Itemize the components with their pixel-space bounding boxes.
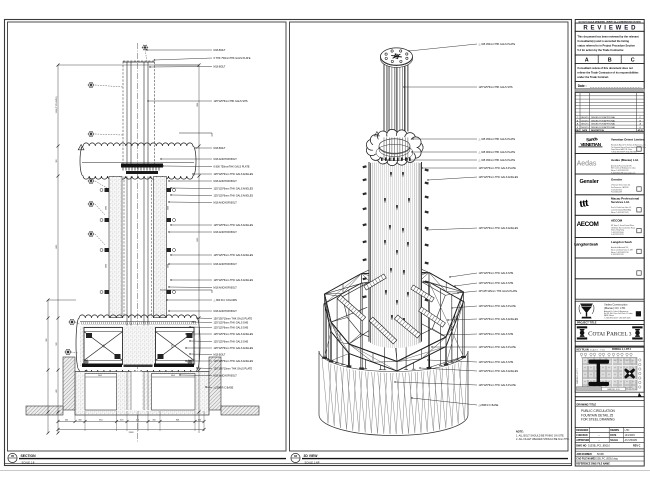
svg-text:△ 345 450mmTHK GALS PLATE: △ 345 450mmTHK GALS PLATE [479, 43, 516, 46]
svg-text:5153B_PC_85010.dwg: 5153B_PC_85010.dwg [594, 459, 618, 461]
svg-text:This document has been rev: This document has been reviewed by the r… [577, 34, 638, 38]
svg-text:M16 BOLT: M16 BOLT [214, 66, 226, 69]
svg-text:Aedas: Aedas [577, 160, 597, 167]
svg-text:△ 800 R.C COLUMN: △ 800 R.C COLUMN [214, 299, 238, 302]
svg-text:KEY PLAN: KEY PLAN [577, 348, 589, 351]
svg-text:125*125*6mm THK GALS SHS: 125*125*6mm THK GALS SHS [479, 361, 514, 364]
svg-text:125*125*6mm THK GALS ANGLES: 125*125*6mm THK GALS ANGLES [214, 224, 254, 227]
svg-text:△ 345 900mmTHK GALS PLATE: △ 345 900mmTHK GALS PLATE [479, 151, 516, 154]
svg-text:F 415.836.4599: F 415.836.4599 [611, 192, 622, 194]
svg-text:under the Trade Contract.: under the Trade Contract. [577, 75, 609, 79]
svg-text:ISSUED FOR APPROVAL: ISSUED FOR APPROVAL [591, 116, 616, 119]
svg-text:5153B_PCI_85010: 5153B_PCI_85010 [588, 444, 610, 448]
svg-text:APVD: APVD [638, 129, 644, 132]
svg-text:FOR STEEL DRAWING: FOR STEEL DRAWING [581, 418, 615, 422]
svg-text:125*125*6mm THK GALS SHS: 125*125*6mm THK GALS SHS [214, 327, 249, 330]
svg-text:△ 345 450mmTHK GALS PLATE: △ 345 450mmTHK GALS PLATE [479, 159, 516, 162]
svg-text:05: 05 [11, 454, 15, 458]
svg-text:A: A [585, 58, 589, 64]
svg-text:M16 BOLT: M16 BOLT [214, 354, 226, 357]
svg-text:F +852 3922 9797: F +852 3922 9797 [611, 234, 624, 236]
svg-text:150*150*10mm THK GALS PLATE: 150*150*10mm THK GALS PLATE [214, 368, 253, 371]
svg-text:REFERENCE DWG FILE NAME: REFERENCE DWG FILE NAME [576, 463, 610, 466]
svg-text:M16 BOLT: M16 BOLT [214, 49, 226, 52]
svg-text:PARCEL 1, LOT 2: PARCEL 1, LOT 2 [612, 348, 632, 351]
svg-text:125*125*6mm THK GALS ANGLES: 125*125*6mm THK GALS ANGLES [214, 360, 254, 363]
svg-text:28/05/15: 28/05/15 [581, 124, 590, 126]
svg-text:COTAI PARCEL 3: COTAI PARCEL 3 [588, 331, 632, 338]
svg-text:DESCRIPTION: DESCRIPTION [591, 130, 605, 132]
svg-text:1294 (TYP LEVEL): 1294 (TYP LEVEL) [56, 96, 58, 113]
svg-text:DESIGNED: DESIGNED [576, 430, 588, 432]
svg-text:status referred to in Pro: status referred to in Project Procedure … [577, 43, 635, 47]
svg-text:5.4 for action by the Tra: 5.4 for action by the Trade Contractor. [577, 48, 624, 52]
svg-text:125*125*6mm THK GALS ANGLES: 125*125*6mm THK GALS ANGLES [214, 347, 254, 350]
svg-text:M16 ANCHOR BOLT: M16 ANCHOR BOLT [214, 158, 238, 161]
svg-text:△2388 R.C BASE: △2388 R.C BASE [479, 404, 499, 407]
svg-text:Macau T +853 2837 5621: Macau T +853 2837 5621 [611, 212, 629, 214]
svg-text:△2388 R.C BASE: △2388 R.C BASE [214, 387, 234, 390]
svg-text:125*125*6mm THK GALS SHS: 125*125*6mm THK GALS SHS [479, 272, 514, 275]
svg-text:M16 ANCHOR BOLT: M16 ANCHOR BOLT [214, 202, 238, 205]
svg-text:(Macau) CO. LTD.: (Macau) CO. LTD. [604, 306, 626, 310]
svg-text:CAD FILE NAME: CAD FILE NAME [576, 458, 594, 461]
svg-text:T +853 2875 3225 F +853 2875: T +853 2875 3225 F +853 2875 3226 [604, 317, 630, 319]
svg-text:T 415.433.3700: T 415.433.3700 [611, 189, 622, 191]
svg-text:C: C [631, 58, 635, 64]
svg-text:1. ALL BOLT SHOULD BE FIXING: 1. ALL BOLT SHOULD BE FIXING ON SITE. [516, 434, 565, 437]
svg-text:APPROVED: APPROVED [576, 439, 589, 442]
svg-text:AECOM: AECOM [577, 221, 599, 228]
svg-text:No.263, Edf. China Civil Plaza: No.263, Edf. China Civil Plaza, 12 andar [604, 313, 633, 315]
svg-text:3600: 3600 [168, 206, 170, 210]
svg-text:T +852 3922 9000: T +852 3922 9000 [611, 232, 624, 234]
svg-text:DWG NO: DWG NO [576, 445, 586, 448]
svg-text:M16 ANCHOR BOLT: M16 ANCHOR BOLT [214, 287, 238, 290]
svg-text:125*125*6mm THK GALS SHS: 125*125*6mm THK GALS SHS [214, 322, 249, 325]
svg-text:M16 BOLT: M16 BOLT [214, 147, 226, 150]
svg-text:AECOM: AECOM [611, 219, 623, 223]
svg-text:JOB NUMBER: JOB NUMBER [576, 454, 592, 456]
svg-text:125*125*6mm THK GALS ANGLES: 125*125*6mm THK GALS ANGLES [479, 318, 519, 321]
svg-text:125*125*6mm THK GALS ANGLES: 125*125*6mm THK GALS ANGLES [214, 188, 254, 191]
svg-text:F +853 2833 1532: F +853 2833 1532 [611, 254, 624, 256]
svg-text:125*125*6mmTHK GALS SHS: 125*125*6mmTHK GALS SHS [479, 86, 513, 89]
svg-text:M16 ANCHOR BOLT: M16 ANCHOR BOLT [214, 310, 238, 313]
svg-text:Aedas (Macau) Ltd.: Aedas (Macau) Ltd. [611, 158, 639, 162]
svg-text:3600: 3600 [106, 206, 108, 210]
svg-text:ISSUED FOR APPROVAL: ISSUED FOR APPROVAL [591, 126, 616, 129]
svg-text:02: 02 [294, 454, 298, 458]
svg-text:DATE: DATE [610, 434, 617, 437]
svg-text:125*125*6mm THK GALS SHS: 125*125*6mm THK GALS SHS [479, 282, 514, 285]
svg-text:2958: 2958 [129, 432, 135, 434]
svg-text:M16 ANCHOR BOLT: M16 ANCHOR BOLT [214, 231, 238, 234]
svg-text:PARCEL 3 05: PARCEL 3 05 [607, 388, 620, 391]
svg-text:Langdon Seah: Langdon Seah [574, 241, 599, 246]
svg-text:125*125*6mm THK GALS SHS: 125*125*6mm THK GALS SHS [479, 333, 514, 336]
svg-text:DRAWING TITLE: DRAWING TITLE [577, 403, 597, 406]
svg-text:125*125*6mm THK GALS ANGLES: 125*125*6mm THK GALS ANGLES [214, 279, 254, 282]
svg-text:SCALE 1:NP: SCALE 1:NP [305, 460, 320, 464]
svg-text:Macau T +853 2833 1710: Macau T +853 2833 1710 [611, 252, 629, 254]
svg-text:relieve the Trade Contracto: relieve the Trade Contractor of its resp… [577, 71, 639, 75]
svg-text:Date :: Date : [578, 84, 587, 88]
svg-text:M16 ANCHOR BOLT: M16 ANCHOR BOLT [214, 263, 238, 266]
svg-text:AS SHOWN: AS SHOWN [625, 439, 638, 442]
svg-text:CHECKED: CHECKED [576, 435, 588, 437]
svg-text:ISSUED FOR APPROVAL: ISSUED FOR APPROVAL [591, 119, 616, 122]
svg-text:ISSUED FOR APPROVAL: ISSUED FOR APPROVAL [591, 123, 616, 126]
svg-text:SCALE 1 : 7 500: SCALE 1 : 7 500 [590, 348, 606, 351]
svg-text:Consultant review of this: Consultant review of this document does … [577, 66, 633, 70]
svg-text:125*125*6mm THK GALS ANGLES: 125*125*6mm THK GALS ANGLES [214, 333, 254, 336]
svg-text:125*125*6mm THK GALS SHS: 125*125*6mm THK GALS SHS [214, 341, 249, 344]
svg-text:SECTION: SECTION [21, 454, 37, 458]
svg-text:02/06/15: 02/06/15 [581, 120, 590, 122]
svg-text:6 800 750mmTHK GALS PLATE: 6 800 750mmTHK GALS PLATE [214, 166, 250, 169]
svg-text:5153B: 5153B [597, 454, 604, 456]
svg-text:Langdon Seah: Langdon Seah [611, 240, 632, 244]
svg-text:3600: 3600 [106, 264, 108, 268]
svg-text:M16 ANCHOR BOLT: M16 ANCHOR BOLT [214, 375, 238, 378]
svg-text:--: -- [598, 435, 600, 437]
svg-text:125*125*6mmTHK GALS SHS: 125*125*6mmTHK GALS SHS [214, 100, 248, 103]
svg-text:REV C: REV C [633, 445, 641, 448]
svg-text:--: -- [598, 440, 600, 442]
svg-text:500: 500 [172, 344, 174, 347]
svg-text:△ 345 450mmTHK GALS PLATE: △ 345 450mmTHK GALS PLATE [479, 138, 516, 141]
svg-text:Services Ltd.: Services Ltd. [611, 200, 630, 204]
svg-text:PARCEL 1, LOT 1: PARCEL 1, LOT 1 [576, 368, 579, 383]
svg-text:125*125*6mm THK GALS ANGLES: 125*125*6mm THK GALS ANGLES [214, 173, 254, 176]
svg-text:B: B [608, 58, 612, 64]
svg-text:125*125*6mm THK GALS PLATE: 125*125*6mm THK GALS PLATE [479, 167, 517, 170]
svg-text:125*125*6mm THK GALS ANGLES: 125*125*6mm THK GALS ANGLES [479, 370, 519, 373]
svg-text:125*125*6mm THK GALS ANGLES: 125*125*6mm THK GALS ANGLES [479, 176, 519, 179]
svg-text:125*125*6mm THK GALS ANGLES: 125*125*6mm THK GALS ANGLES [214, 195, 254, 198]
svg-text:125*125*6mm THK GALS PLATE: 125*125*6mm THK GALS PLATE [479, 384, 517, 387]
svg-text:125*125*6mm THK GALS ANGLES: 125*125*6mm THK GALS ANGLES [214, 254, 254, 257]
svg-text:NOTE:: NOTE: [516, 431, 524, 434]
svg-text:DRAWN: DRAWN [610, 429, 619, 432]
svg-text:6 THK 750mmTHK GALS PLATE: 6 THK 750mmTHK GALS PLATE [214, 57, 251, 60]
svg-text:R E V I E W E D: R E V I E W E D [583, 26, 636, 32]
svg-text:Venetian Orient Limited: Venetian Orient Limited [611, 137, 645, 141]
svg-text:Macau T +853 2833 1113: Macau T +853 2833 1113 [611, 170, 629, 172]
svg-text:125*125*6mm THK GALS PLATE: 125*125*6mm THK GALS PLATE [479, 305, 517, 308]
svg-text:125*125*6mm THK GALS ANGLES: 125*125*6mm THK GALS ANGLES [479, 227, 519, 230]
svg-text:DATE: DATE [582, 129, 588, 132]
svg-text:SCALE 1:8: SCALE 1:8 [22, 460, 35, 464]
svg-text:20/05/15: 20/05/15 [581, 127, 590, 129]
svg-text:150*150*10mm THK GALS PLATE: 150*150*10mm THK GALS PLATE [214, 318, 253, 321]
svg-text:3D VIEW: 3D VIEW [304, 454, 319, 458]
svg-text:M16 ANCHOR BOLT: M16 ANCHOR BOLT [214, 180, 238, 183]
svg-text:SCALE: SCALE [610, 439, 618, 442]
svg-text:08/06/15: 08/06/15 [581, 117, 590, 119]
svg-text:LHO: LHO [625, 430, 630, 432]
svg-text:2. ALL FILLET WELDED SHOULD B: 2. ALL FILLET WELDED SHOULD BE 3mm THK. [516, 438, 570, 441]
svg-text:Gensler: Gensler [611, 177, 623, 181]
svg-text:Gensler: Gensler [579, 179, 599, 185]
svg-text:125*125*6mm THK GALS PLATE: 125*125*6mm THK GALS PLATE [479, 346, 517, 349]
svg-text:Consultants(s) and is accor: Consultants(s) and is accorded the listi… [577, 39, 629, 43]
svg-text:14/1/2015: 14/1/2015 [625, 435, 636, 437]
svg-text:500: 500 [104, 344, 106, 347]
svg-text:40*125*125mm THK GALS PLATE: 40*125*125mm THK GALS PLATE [479, 290, 518, 293]
